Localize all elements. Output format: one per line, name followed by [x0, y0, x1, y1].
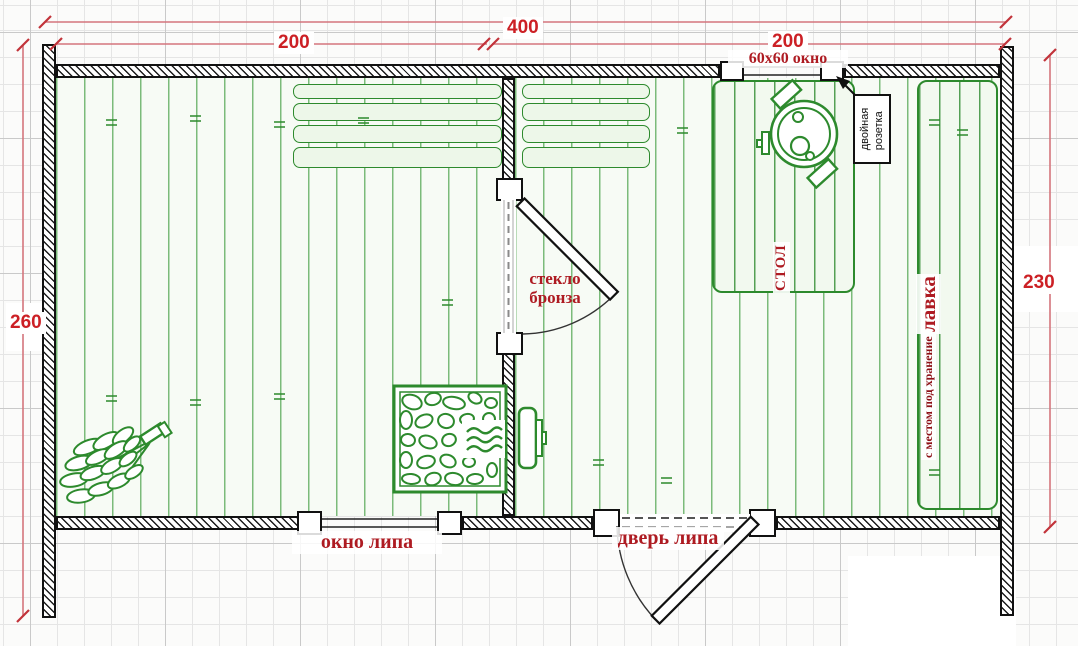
inner-door-label-line2: бронза	[517, 288, 593, 307]
dim-overall-width: 400	[503, 17, 543, 39]
top-wall-right-segment	[844, 64, 1000, 78]
steam-room-floor	[56, 78, 503, 516]
bottom-wall-segment	[776, 516, 1000, 530]
right-wall	[1000, 46, 1014, 616]
sauna-shelf-plank	[293, 84, 502, 99]
partition-wall-upper	[502, 78, 515, 180]
top-wall-left-segment	[56, 64, 720, 78]
bottom-wall-segment	[56, 516, 300, 530]
bottom-window-label: окно липа	[292, 531, 442, 554]
dim-left-height: 260	[6, 312, 46, 334]
inner-door-frame	[496, 332, 523, 355]
dim-right-height: 230	[1019, 272, 1059, 294]
white-patch	[848, 556, 1016, 646]
outlet-callout-box: двойная розетка	[853, 94, 891, 164]
inner-door-frame	[496, 178, 523, 201]
entrance-door-label: дверь липа	[612, 527, 724, 550]
inner-door-label: стекло бронза	[517, 269, 593, 307]
sauna-shelf-plank	[293, 147, 502, 168]
rest-shelf-plank	[522, 103, 650, 121]
floor-plan-canvas: двойная розетка 400 200 200 260 230 60x6…	[0, 0, 1078, 646]
bottom-wall-segment	[462, 516, 593, 530]
inner-door-opening	[501, 198, 516, 335]
table-label: СТОЛ	[773, 242, 790, 293]
outlet-label: двойная розетка	[858, 108, 886, 151]
rest-shelf-plank	[522, 84, 650, 99]
sauna-shelf-plank	[293, 103, 502, 121]
rest-shelf-plank	[522, 147, 650, 168]
sauna-shelf-plank	[293, 125, 502, 143]
bench-label: лавка	[916, 274, 941, 334]
inner-door-label-line1: стекло	[517, 269, 593, 288]
bench-note-label: с местом под хранение	[921, 334, 936, 460]
rest-shelf-plank	[522, 125, 650, 143]
entrance-door-jamb	[749, 509, 776, 537]
dim-left-width: 200	[274, 32, 314, 54]
top-window-label: 60x60 окно	[728, 50, 848, 68]
partition-wall-lower	[502, 353, 515, 516]
